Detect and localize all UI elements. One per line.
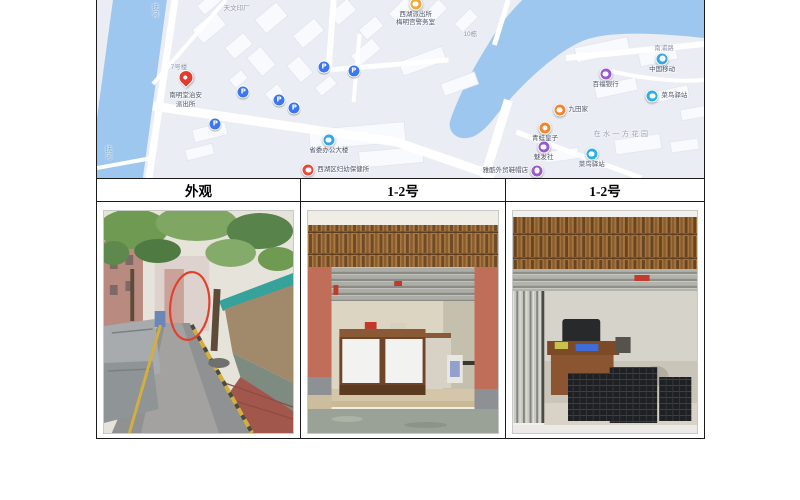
police-station-icon [409, 0, 422, 10]
road-label: 南浦路 [654, 42, 674, 52]
wood-lattice [513, 217, 697, 269]
parking-icon: P [288, 102, 301, 115]
police-station-label: 西湖派出所梅明宫警务室 [396, 11, 435, 28]
restaurant-icon [553, 104, 566, 117]
column-header-shop-1-2-a: 1-2号 [301, 179, 506, 202]
parking-icon: P [318, 60, 331, 73]
column-header-exterior: 外观 [97, 179, 301, 202]
road-label: 7号楼 [171, 61, 188, 71]
black-crate [659, 377, 691, 421]
map-overlay: PPPPPP南明堂治安派出所西湖派出所梅明宫警务室省委办公大楼西湖区妇幼保健所中… [97, 0, 704, 178]
roller-shutter [332, 267, 475, 301]
restaurant-label: 九田家 [569, 106, 589, 114]
left-pillar [308, 267, 332, 377]
rolled-shutter [513, 269, 697, 291]
alley-exterior-photo [103, 210, 294, 434]
counter [339, 322, 425, 395]
hair-salon-icon [537, 141, 550, 154]
china-mobile-label: 中国移动 [649, 66, 675, 74]
black-crate [568, 373, 612, 421]
folding-door [513, 291, 541, 423]
road-label: 抚河 [148, 3, 158, 18]
photo-cell-shop-interior [506, 202, 705, 439]
road-label: 天文印厂 [224, 2, 250, 12]
bank-label: 百福银行 [593, 81, 619, 89]
photo-cell-exterior [97, 202, 301, 439]
clinic-icon [302, 163, 315, 176]
china-mobile-icon [656, 52, 669, 65]
hair-salon-label: 魅发社 [534, 154, 554, 162]
document-page: PPPPPP南明堂治安派出所西湖派出所梅明宫警务室省委办公大楼西湖区妇幼保健所中… [96, 0, 705, 439]
right-pillar [474, 267, 498, 389]
gov-office-label: 省委办公大楼 [309, 147, 348, 155]
column-header-shop-1-2-b: 1-2号 [506, 179, 705, 202]
police-kiosk-label: 南明堂治安派出所 [169, 92, 202, 109]
clinic-label: 西湖区妇幼保健所 [317, 166, 369, 174]
parking-icon: P [237, 86, 250, 99]
kids-shop-icon [538, 121, 551, 134]
parking-icon: P [347, 65, 360, 78]
blue-folder [576, 344, 599, 351]
shop-1-2-front-photo [307, 210, 499, 434]
map-embed: PPPPPP南明堂治安派出所西湖派出所梅明宫警务室省委办公大楼西湖区妇幼保健所中… [97, 0, 704, 178]
photo-cell-shop-front [301, 202, 506, 439]
road-label: 10栋 [463, 28, 477, 38]
road-label: 抚河 [102, 146, 112, 161]
cainiao-station-2-icon [585, 147, 598, 160]
survey-photo-table: PPPPPP南明堂治安派出所西湖派出所梅明宫警务室省委办公大楼西湖区妇幼保健所中… [96, 0, 705, 439]
shop-1-2-interior-photo [512, 210, 698, 434]
black-crate [610, 367, 657, 423]
wood-lattice [308, 225, 498, 267]
shoe-shop-icon [531, 164, 544, 177]
gov-office-icon [322, 134, 335, 147]
cainiao-station-1-icon [646, 89, 659, 102]
shoe-shop-label: 雅酷外贸鞋帽店 [483, 167, 529, 175]
parking-icon: P [273, 94, 286, 107]
cainiao-station-1-label: 菜鸟驿站 [661, 92, 687, 100]
bank-icon [599, 68, 612, 81]
area-label: 在水一方花园 [594, 129, 651, 139]
parking-icon: P [209, 118, 222, 131]
cainiao-station-2-label: 菜鸟驿站 [579, 161, 605, 169]
